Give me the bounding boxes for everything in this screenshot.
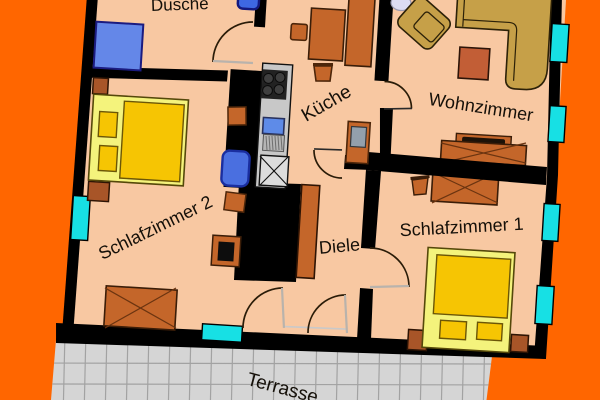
svg-text:Diele: Diele: [318, 234, 361, 258]
svg-text:Dusche: Dusche: [151, 0, 209, 15]
